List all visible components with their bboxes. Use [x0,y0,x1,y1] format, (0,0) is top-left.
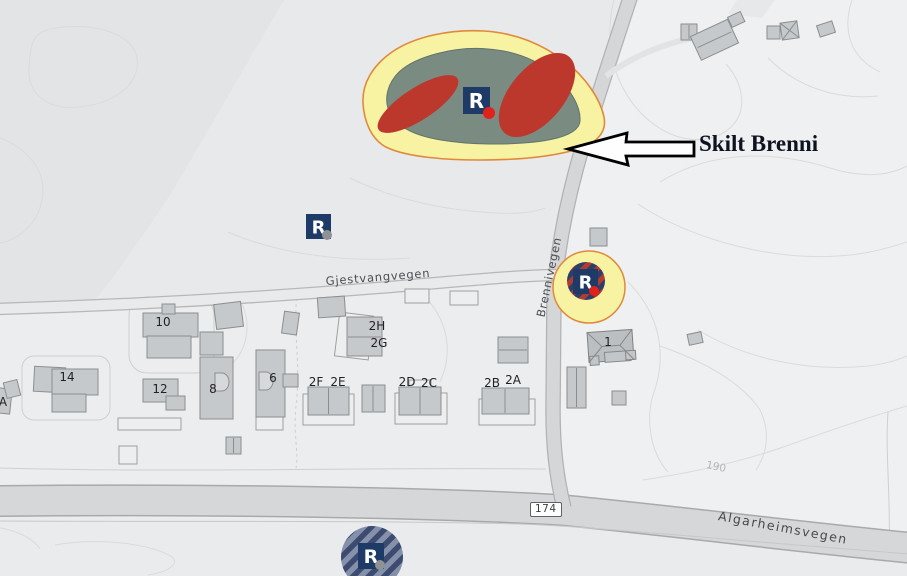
annotation-label: Skilt Brenni [699,131,818,157]
house-number-2H: 2H [362,319,392,333]
marker-dot-red [589,286,599,296]
marker-dot-gray [322,230,332,240]
map-svg: R R R R [0,0,907,576]
house-number-2G: 2G [364,336,394,350]
heritage-marker-small-site[interactable]: R [573,269,599,296]
house-number-8: 8 [198,382,228,396]
route-badge-174: 174 [530,502,562,517]
house-number-A: A [0,395,18,409]
r-marker-icon: R [469,89,484,113]
marker-dot-gray [375,560,385,570]
map-canvas[interactable]: R R R R Gjestvangvegen Brennivegen Algar… [0,0,907,576]
marker-dot-red [483,107,495,119]
house-number-14: 14 [52,370,82,384]
x-roof-building [780,21,799,40]
house-number-1: 1 [593,335,623,349]
heritage-marker-bottom[interactable]: R [358,543,385,570]
house-number-2A: 2A [498,373,528,387]
heritage-marker-middle[interactable]: R [306,214,332,240]
house-number-12: 12 [145,382,175,396]
house-number-2E: 2E [323,375,353,389]
house-number-6: 6 [258,371,288,385]
house-number-10: 10 [148,315,178,329]
house-number-2C: 2C [414,376,444,390]
